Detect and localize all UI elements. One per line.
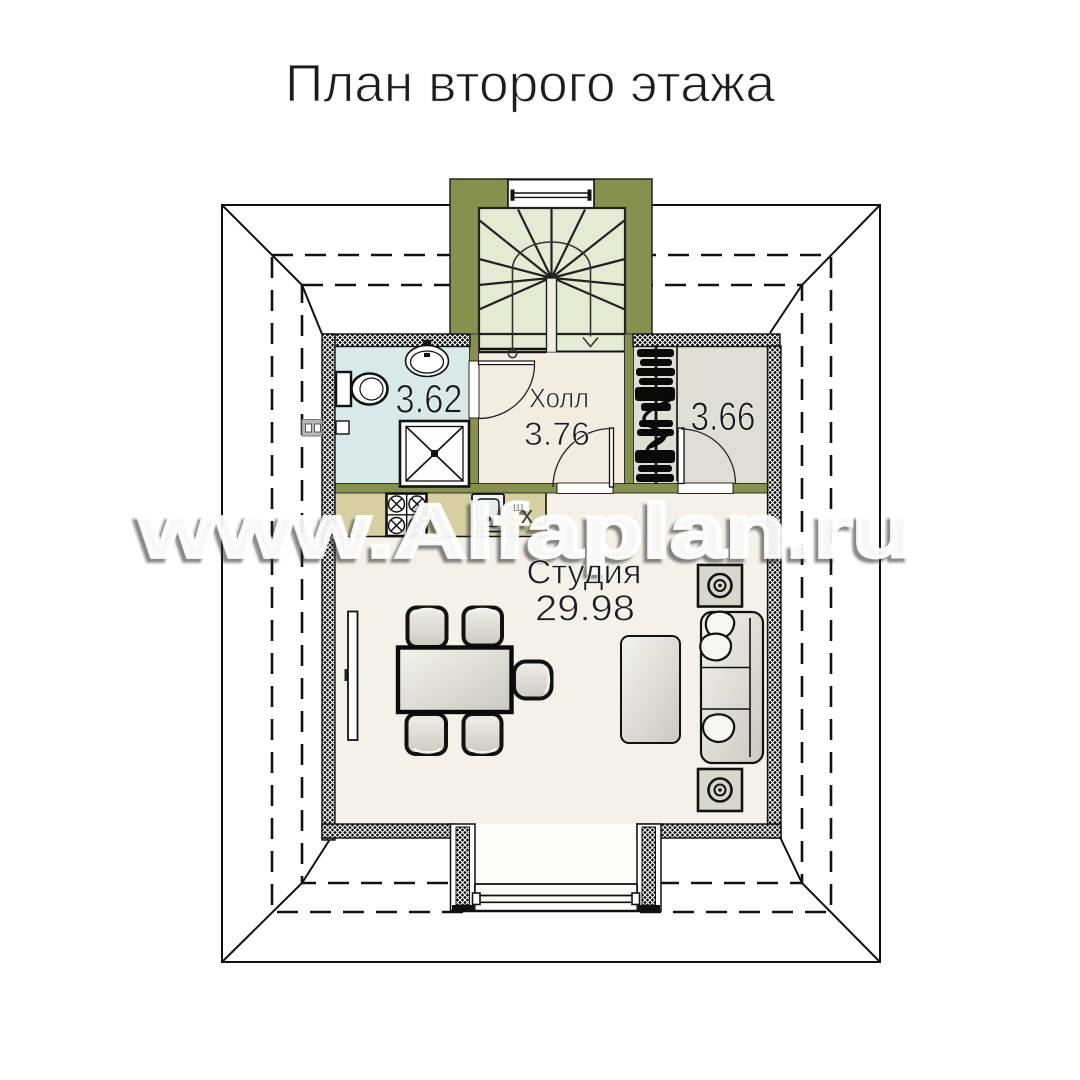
svg-text:х: х xyxy=(521,502,533,529)
svg-text:План второго этажа: План второго этажа xyxy=(285,55,776,114)
svg-text:3.62: 3.62 xyxy=(396,378,463,422)
svg-text:29.98: 29.98 xyxy=(535,588,635,629)
svg-text:3.66: 3.66 xyxy=(691,395,756,439)
svg-text:Холл: Холл xyxy=(529,383,589,414)
svg-text:3.76: 3.76 xyxy=(524,416,590,452)
svg-text:Студия: Студия xyxy=(527,554,642,592)
